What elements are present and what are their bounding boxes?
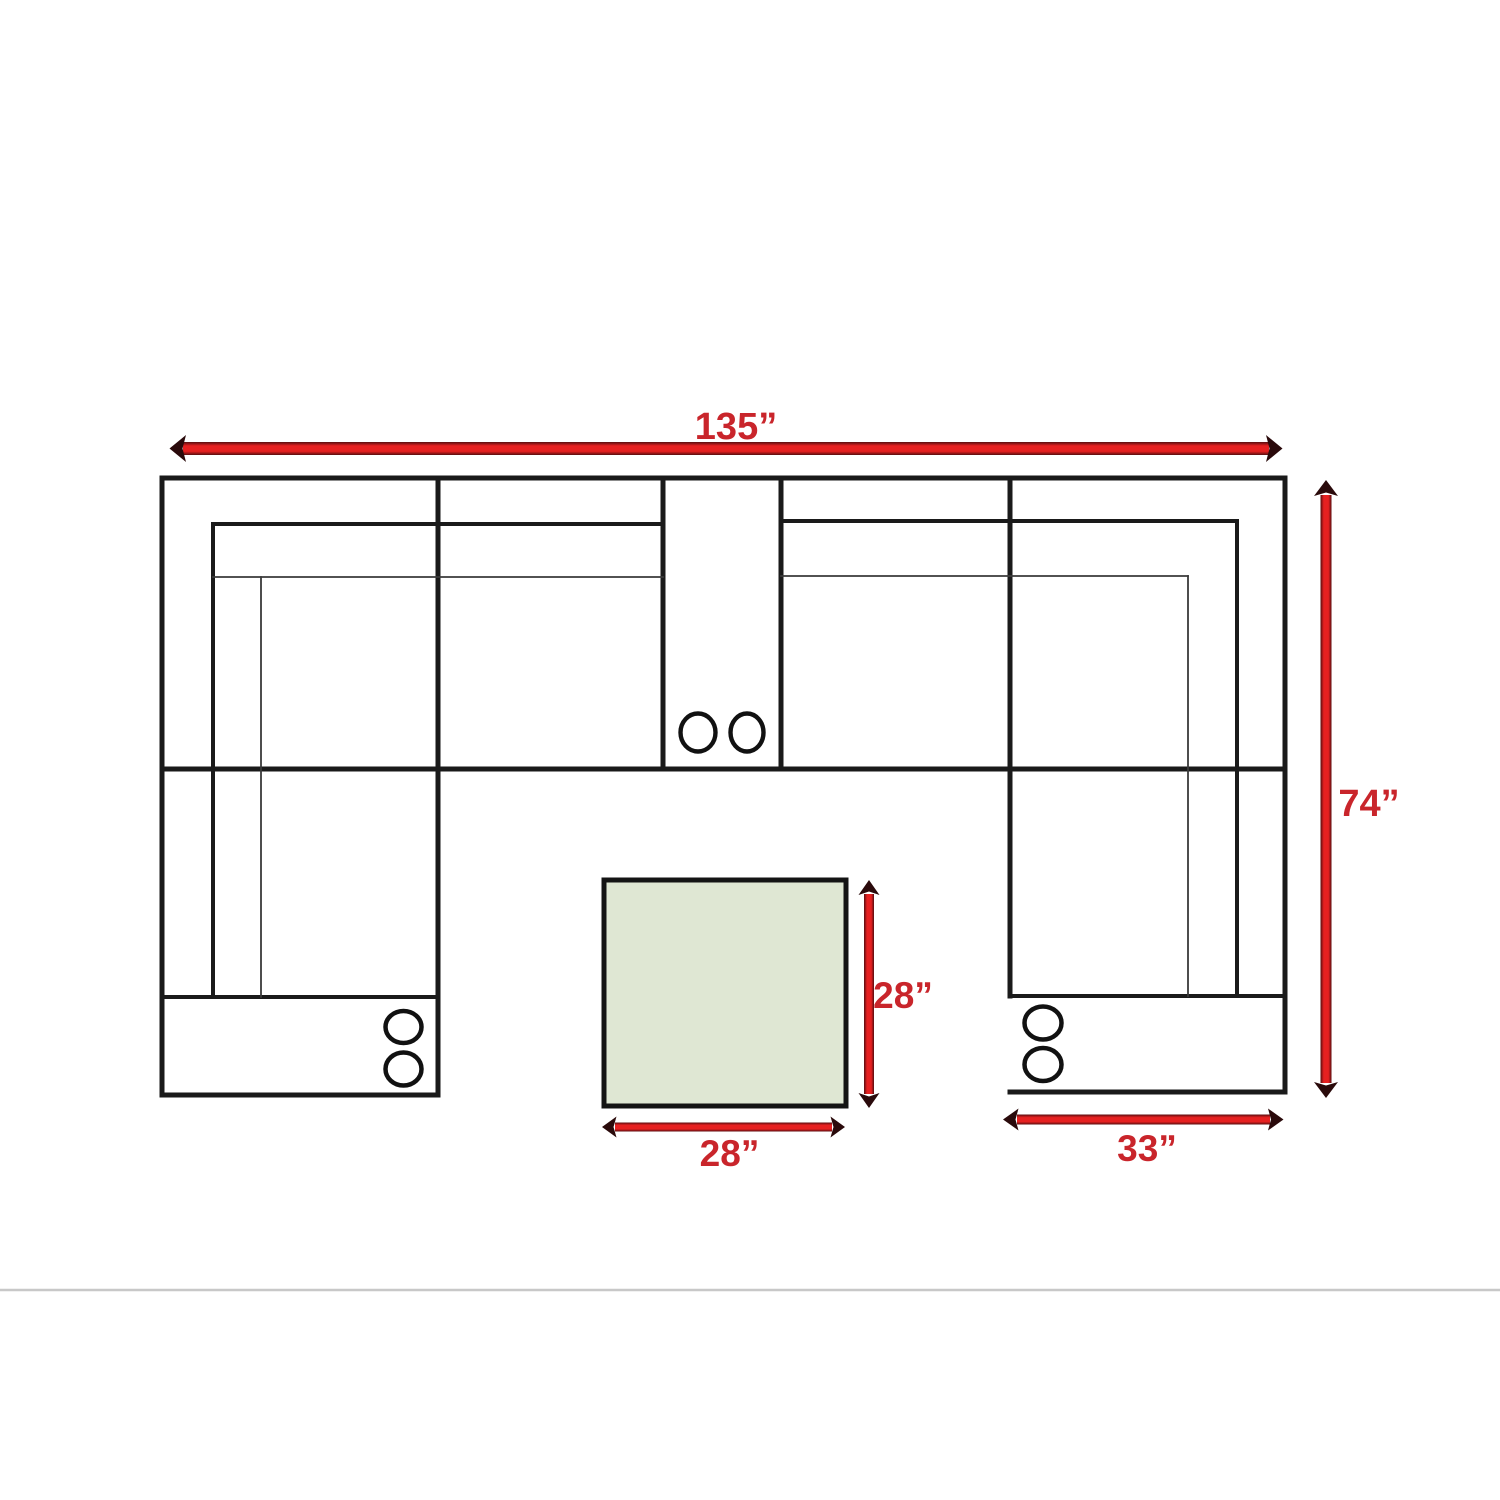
svg-text:33”: 33” (1117, 1128, 1177, 1169)
svg-text:135”: 135” (695, 406, 777, 448)
svg-text:28”: 28” (873, 975, 933, 1016)
svg-text:74”: 74” (1338, 783, 1399, 825)
svg-text:28”: 28” (700, 1133, 760, 1174)
